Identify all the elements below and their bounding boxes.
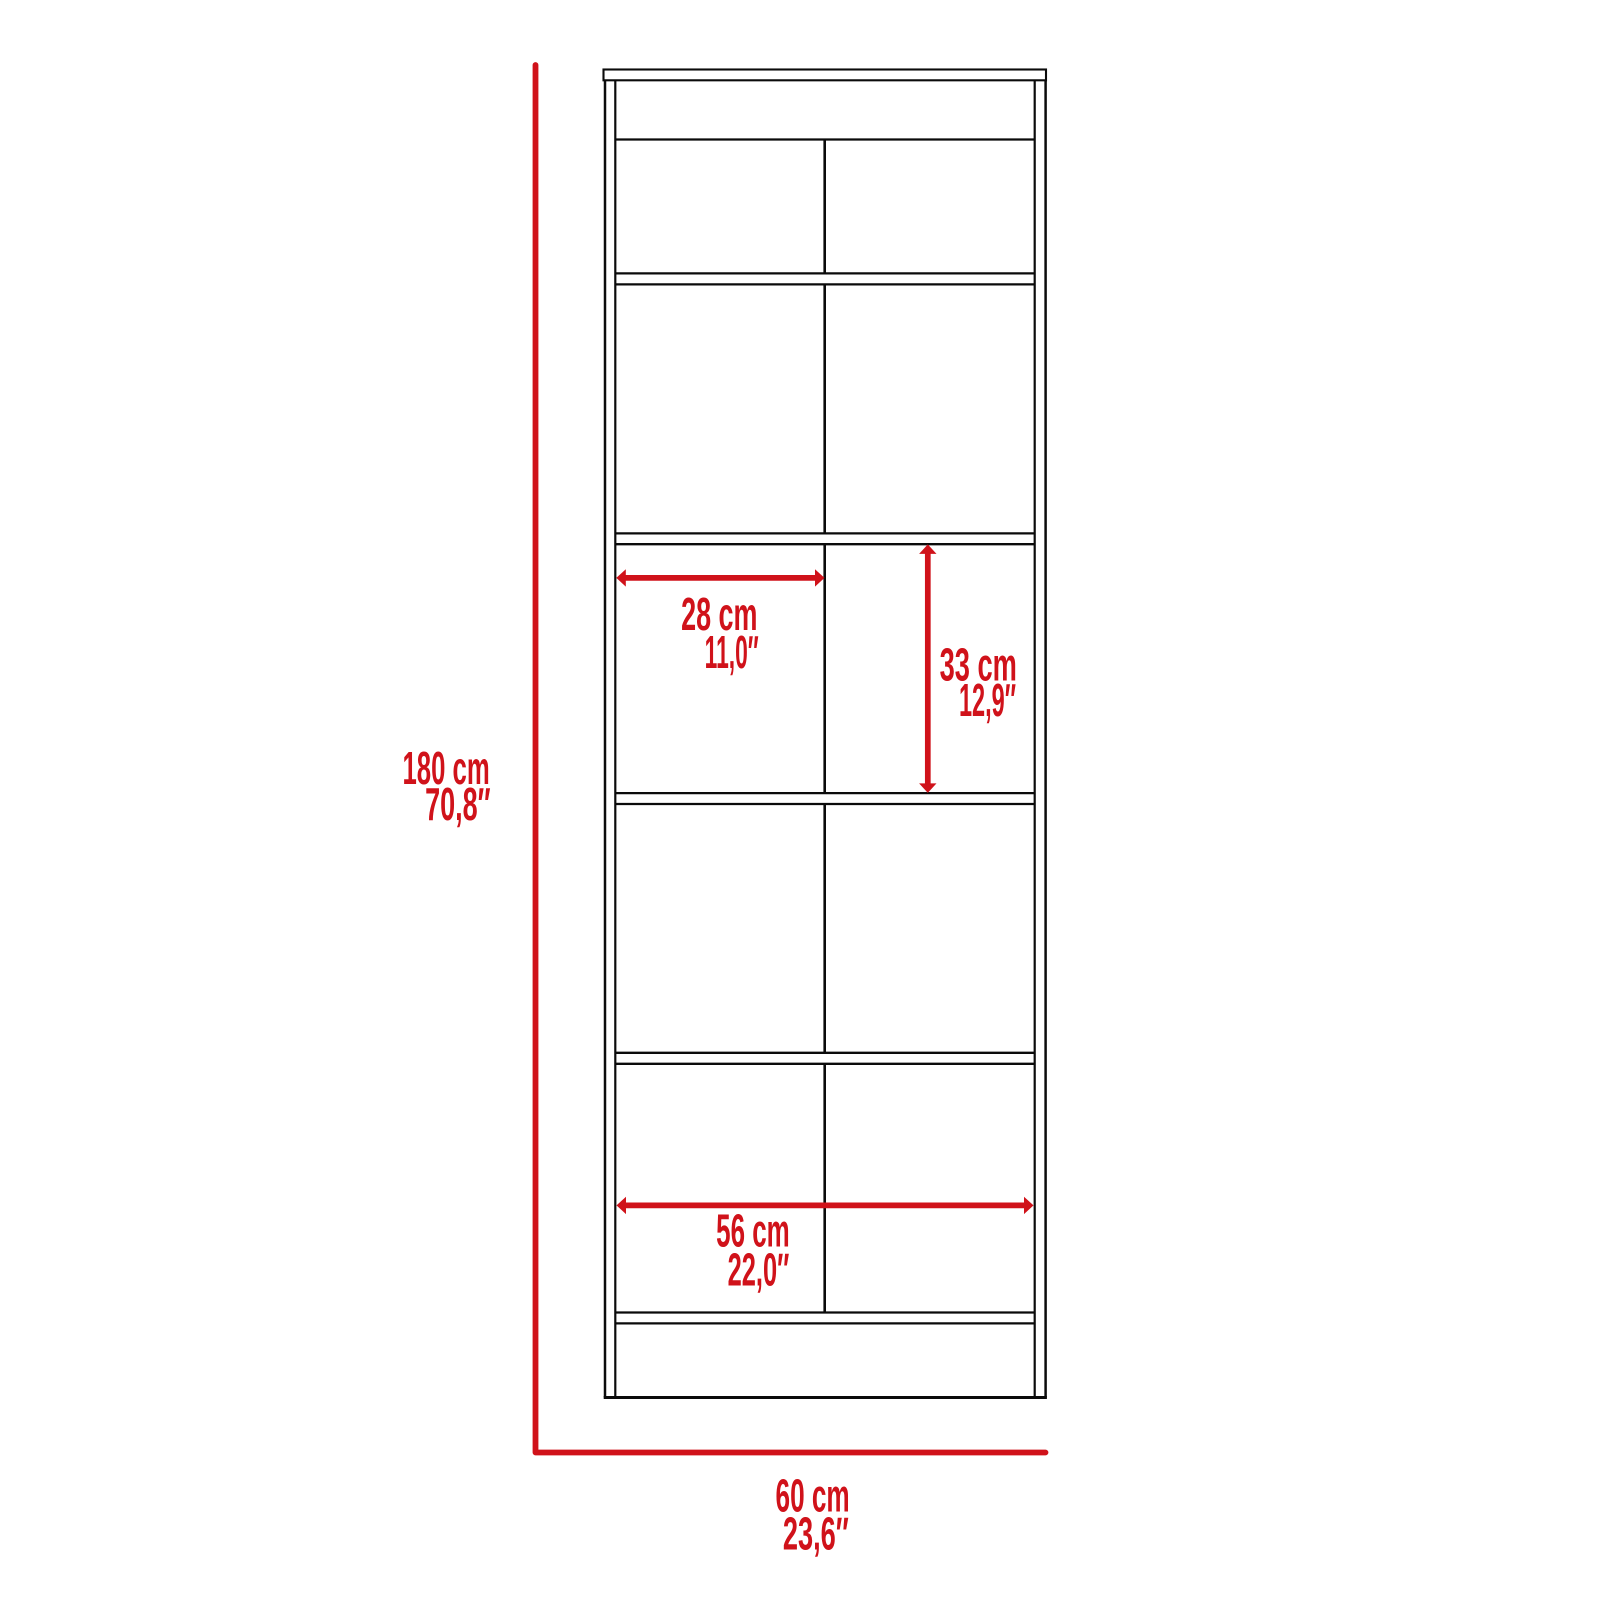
svg-text:70,8″: 70,8″ [425, 779, 491, 830]
svg-text:22,0″: 22,0″ [728, 1243, 790, 1295]
svg-text:12,9″: 12,9″ [959, 674, 1016, 726]
svg-text:23,6″: 23,6″ [783, 1509, 849, 1560]
svg-text:11,0″: 11,0″ [705, 626, 759, 678]
